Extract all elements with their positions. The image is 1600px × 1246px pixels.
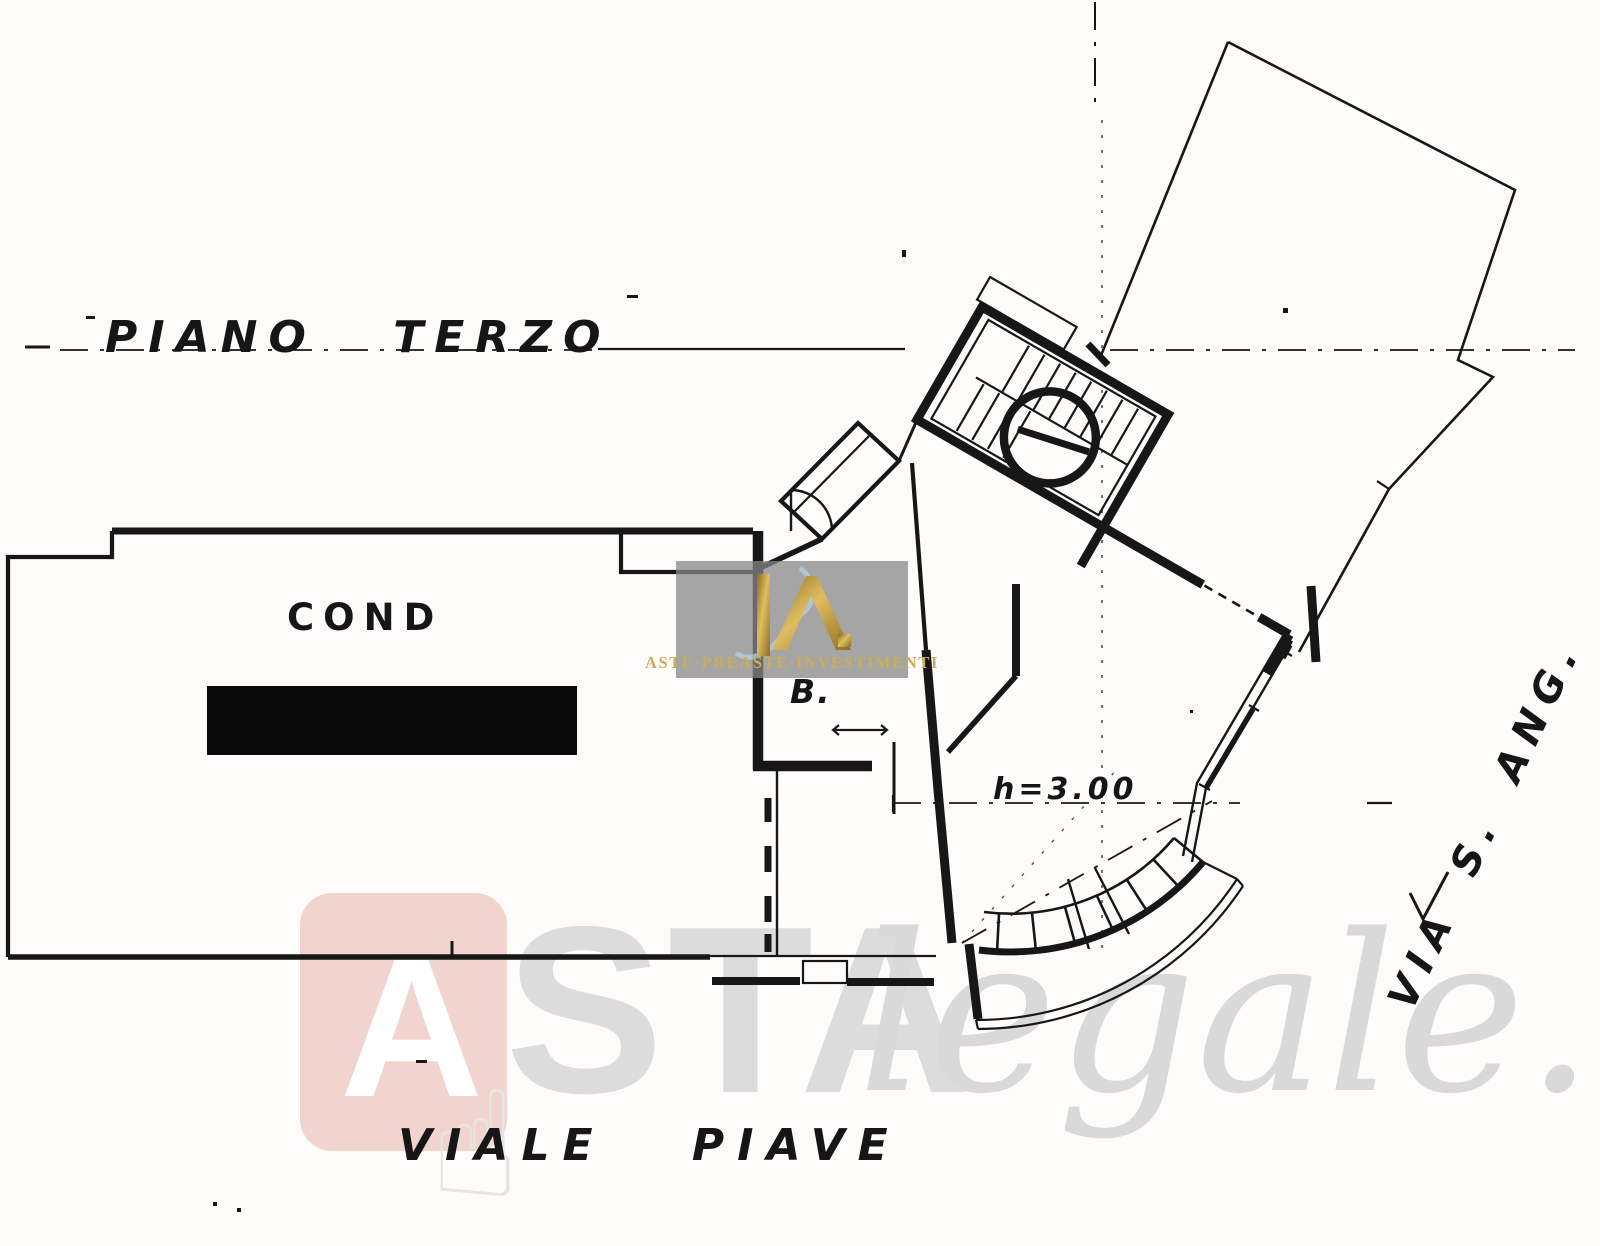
facade-window-band	[1183, 636, 1292, 862]
facade-pier-b	[1206, 709, 1253, 788]
ceiling-height-label: h=3.00	[993, 772, 1138, 807]
agency-badge-watermark: ASTE·PREASTE·INVESTIMENTI	[645, 561, 939, 678]
facade-outer-line	[1192, 641, 1292, 862]
parcel-boundary	[1088, 42, 1515, 919]
dimension-arrow	[833, 725, 887, 735]
floorplan-drawing: A STA legale.net ☝	[0, 0, 1600, 1246]
boundary-left	[1100, 42, 1228, 358]
corridor-wall-b	[1081, 527, 1290, 673]
condominio-label: COND	[287, 596, 443, 639]
cond-left-wall	[8, 531, 112, 957]
annex-link	[899, 420, 917, 461]
annex-outline	[781, 423, 899, 539]
astalegale-wordmark-script: legale.net	[858, 889, 1600, 1142]
corridor-door-gap	[1205, 586, 1258, 617]
pier-wall	[1311, 586, 1316, 662]
apartment-walls	[753, 420, 1316, 955]
boundary-right	[1228, 42, 1515, 652]
balcony-cap-right	[1174, 838, 1203, 862]
corridor-wall-a	[1103, 527, 1203, 585]
boundary-tick	[1377, 481, 1389, 489]
agency-caption: ASTE·PREASTE·INVESTIMENTI	[645, 653, 939, 672]
redaction-bar	[207, 686, 577, 755]
plan-title: PIANO TERZO	[105, 312, 611, 363]
street-label-viale-piave: VIALE PIAVE	[398, 1120, 901, 1171]
door-swing-arc	[791, 490, 832, 531]
fan-wall-upper	[912, 463, 926, 650]
reference-lines	[25, 2, 1575, 950]
inner-wall-diagonal	[948, 676, 1016, 752]
stair-block	[888, 277, 1370, 674]
scanned-floorplan-page: A STA legale.net ☝	[0, 0, 1600, 1246]
